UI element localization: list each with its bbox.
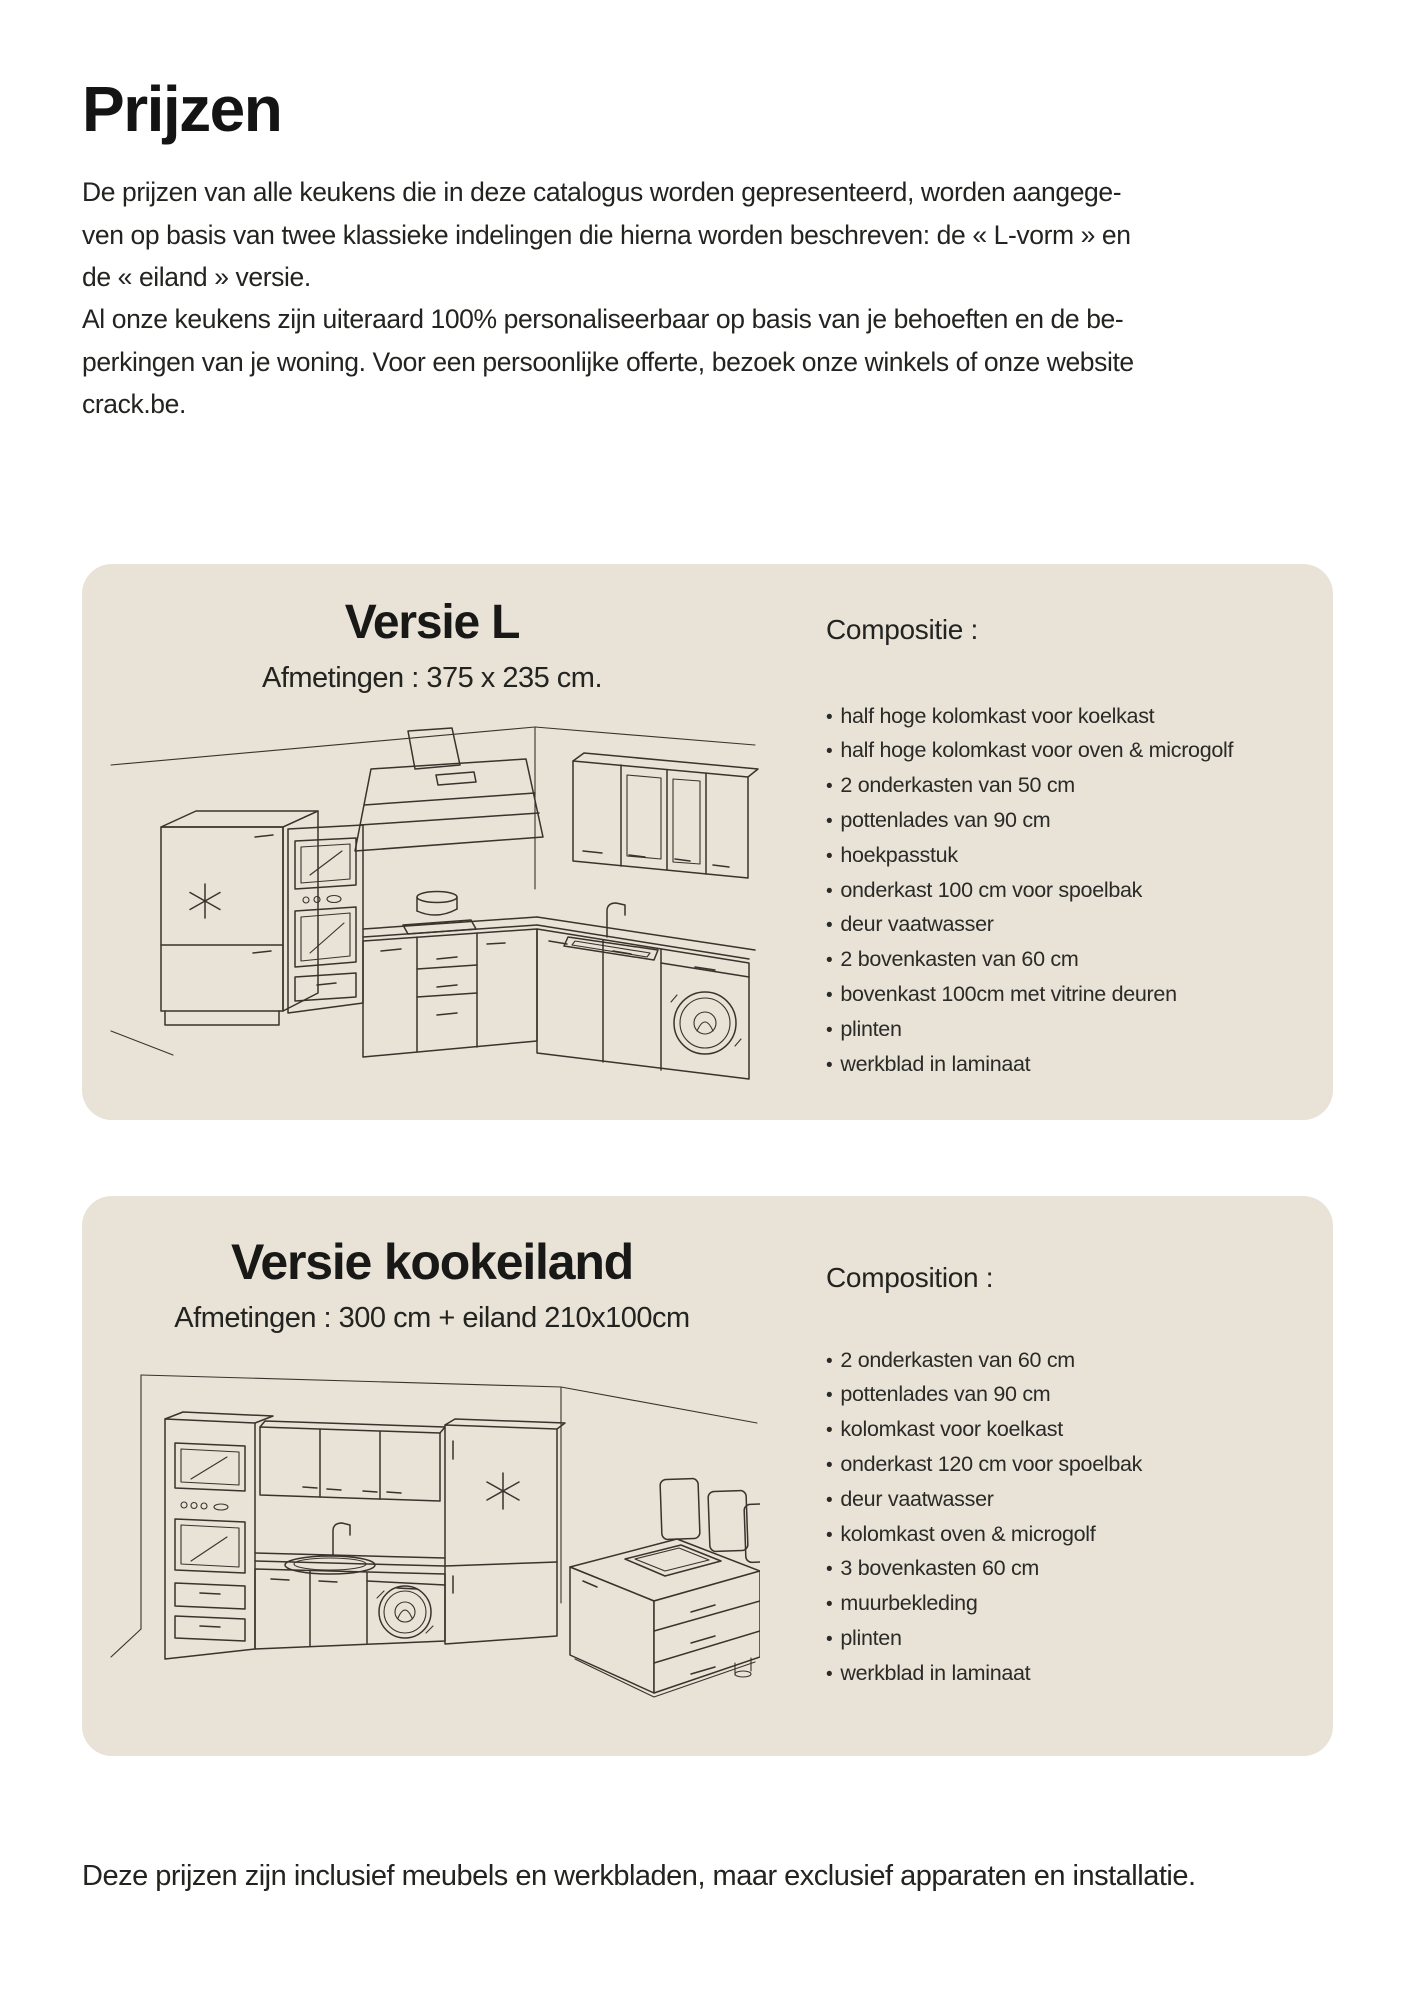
wall-cabinets	[573, 753, 758, 878]
intro-line: ven op basis van twee klassieke indeling…	[82, 214, 1333, 256]
range-hood	[355, 728, 543, 851]
composition-heading: Composition :	[826, 1262, 1293, 1294]
versie-l-left-column: Versie L Afmetingen : 375 x 235 cm.	[98, 598, 766, 1120]
composition-list: 2 onderkasten van 60 cmpottenlades van 9…	[826, 1344, 1293, 1692]
fridge-cabinet	[445, 1419, 565, 1644]
kitchen-island	[570, 1539, 760, 1697]
composition-item: pottenlades van 90 cm	[826, 804, 1293, 839]
composition-item: plinten	[826, 1622, 1293, 1657]
intro-line: perkingen van je woning. Voor een persoo…	[82, 341, 1333, 383]
versie-l-dimensions: Afmetingen : 375 x 235 cm.	[262, 662, 602, 695]
base-cabinets-right	[537, 903, 755, 1079]
catalog-page: Prijzen De prijzen van alle keukens die …	[0, 0, 1415, 1893]
composition-item: 2 bovenkasten van 60 cm	[826, 943, 1293, 978]
composition-item: pottenlades van 90 cm	[826, 1378, 1293, 1413]
kookeiland-dimensions: Afmetingen : 300 cm + eiland 210x100cm	[174, 1302, 689, 1335]
composition-item: half hoge kolomkast voor koelkast	[826, 700, 1293, 735]
composition-item: deur vaatwasser	[826, 908, 1293, 943]
composition-item: onderkast 100 cm voor spoelbak	[826, 874, 1293, 909]
kitchen-l-illustration	[105, 701, 760, 1081]
composition-item: 3 bovenkasten 60 cm	[826, 1552, 1293, 1587]
composition-item: onderkast 120 cm voor spoelbak	[826, 1448, 1293, 1483]
snowflake-icon	[190, 884, 220, 918]
wall-cabinets	[260, 1421, 445, 1501]
versie-l-composition: Compositie : half hoge kolomkast voor ko…	[766, 598, 1293, 1120]
kookeiland-title: Versie kookeiland	[231, 1236, 633, 1289]
base-cabinets-left	[363, 892, 537, 1058]
composition-list: half hoge kolomkast voor koelkasthalf ho…	[826, 700, 1293, 1083]
composition-item: plinten	[826, 1013, 1293, 1048]
kookeiland-left-column: Versie kookeiland Afmetingen : 300 cm + …	[98, 1236, 766, 1756]
washing-machine	[367, 1581, 445, 1638]
composition-item: muurbekleding	[826, 1587, 1293, 1622]
versie-l-card: Versie L Afmetingen : 375 x 235 cm.	[82, 564, 1333, 1120]
footer-note: Deze prijzen zijn inclusief meubels en w…	[82, 1756, 1333, 1893]
kookeiland-composition: Composition : 2 onderkasten van 60 cmpot…	[766, 1236, 1293, 1756]
intro-line: crack.be.	[82, 383, 1333, 425]
kitchen-island-illustration	[105, 1341, 760, 1711]
intro-line: De prijzen van alle keukens die in deze …	[82, 171, 1333, 213]
composition-item: werkblad in laminaat	[826, 1048, 1293, 1083]
composition-item: werkblad in laminaat	[826, 1657, 1293, 1692]
composition-item: 2 onderkasten van 60 cm	[826, 1344, 1293, 1379]
composition-item: half hoge kolomkast voor oven & microgol…	[826, 734, 1293, 769]
washing-machine	[661, 963, 749, 1054]
composition-item: kolomkast oven & microgolf	[826, 1518, 1293, 1553]
oven-column	[165, 1412, 273, 1659]
intro-paragraph: De prijzen van alle keukens die in deze …	[82, 171, 1333, 425]
oven-column	[288, 825, 363, 1013]
cooking-pot	[417, 892, 457, 916]
sink-and-faucet	[285, 1523, 375, 1574]
composition-item: kolomkast voor koelkast	[826, 1413, 1293, 1448]
versie-l-title: Versie L	[345, 598, 520, 648]
intro-line: de « eiland » versie.	[82, 256, 1333, 298]
composition-item: hoekpasstuk	[826, 839, 1293, 874]
composition-heading: Compositie :	[826, 614, 1293, 646]
sink-base-cabinets	[255, 1523, 445, 1649]
snowflake-icon	[487, 1473, 519, 1509]
composition-item: 2 onderkasten van 50 cm	[826, 769, 1293, 804]
versie-kookeiland-card: Versie kookeiland Afmetingen : 300 cm + …	[82, 1196, 1333, 1756]
intro-line: Al onze keukens zijn uiteraard 100% pers…	[82, 298, 1333, 340]
page-title: Prijzen	[82, 0, 1333, 143]
composition-item: bovenkast 100cm met vitrine deuren	[826, 978, 1293, 1013]
composition-item: deur vaatwasser	[826, 1483, 1293, 1518]
